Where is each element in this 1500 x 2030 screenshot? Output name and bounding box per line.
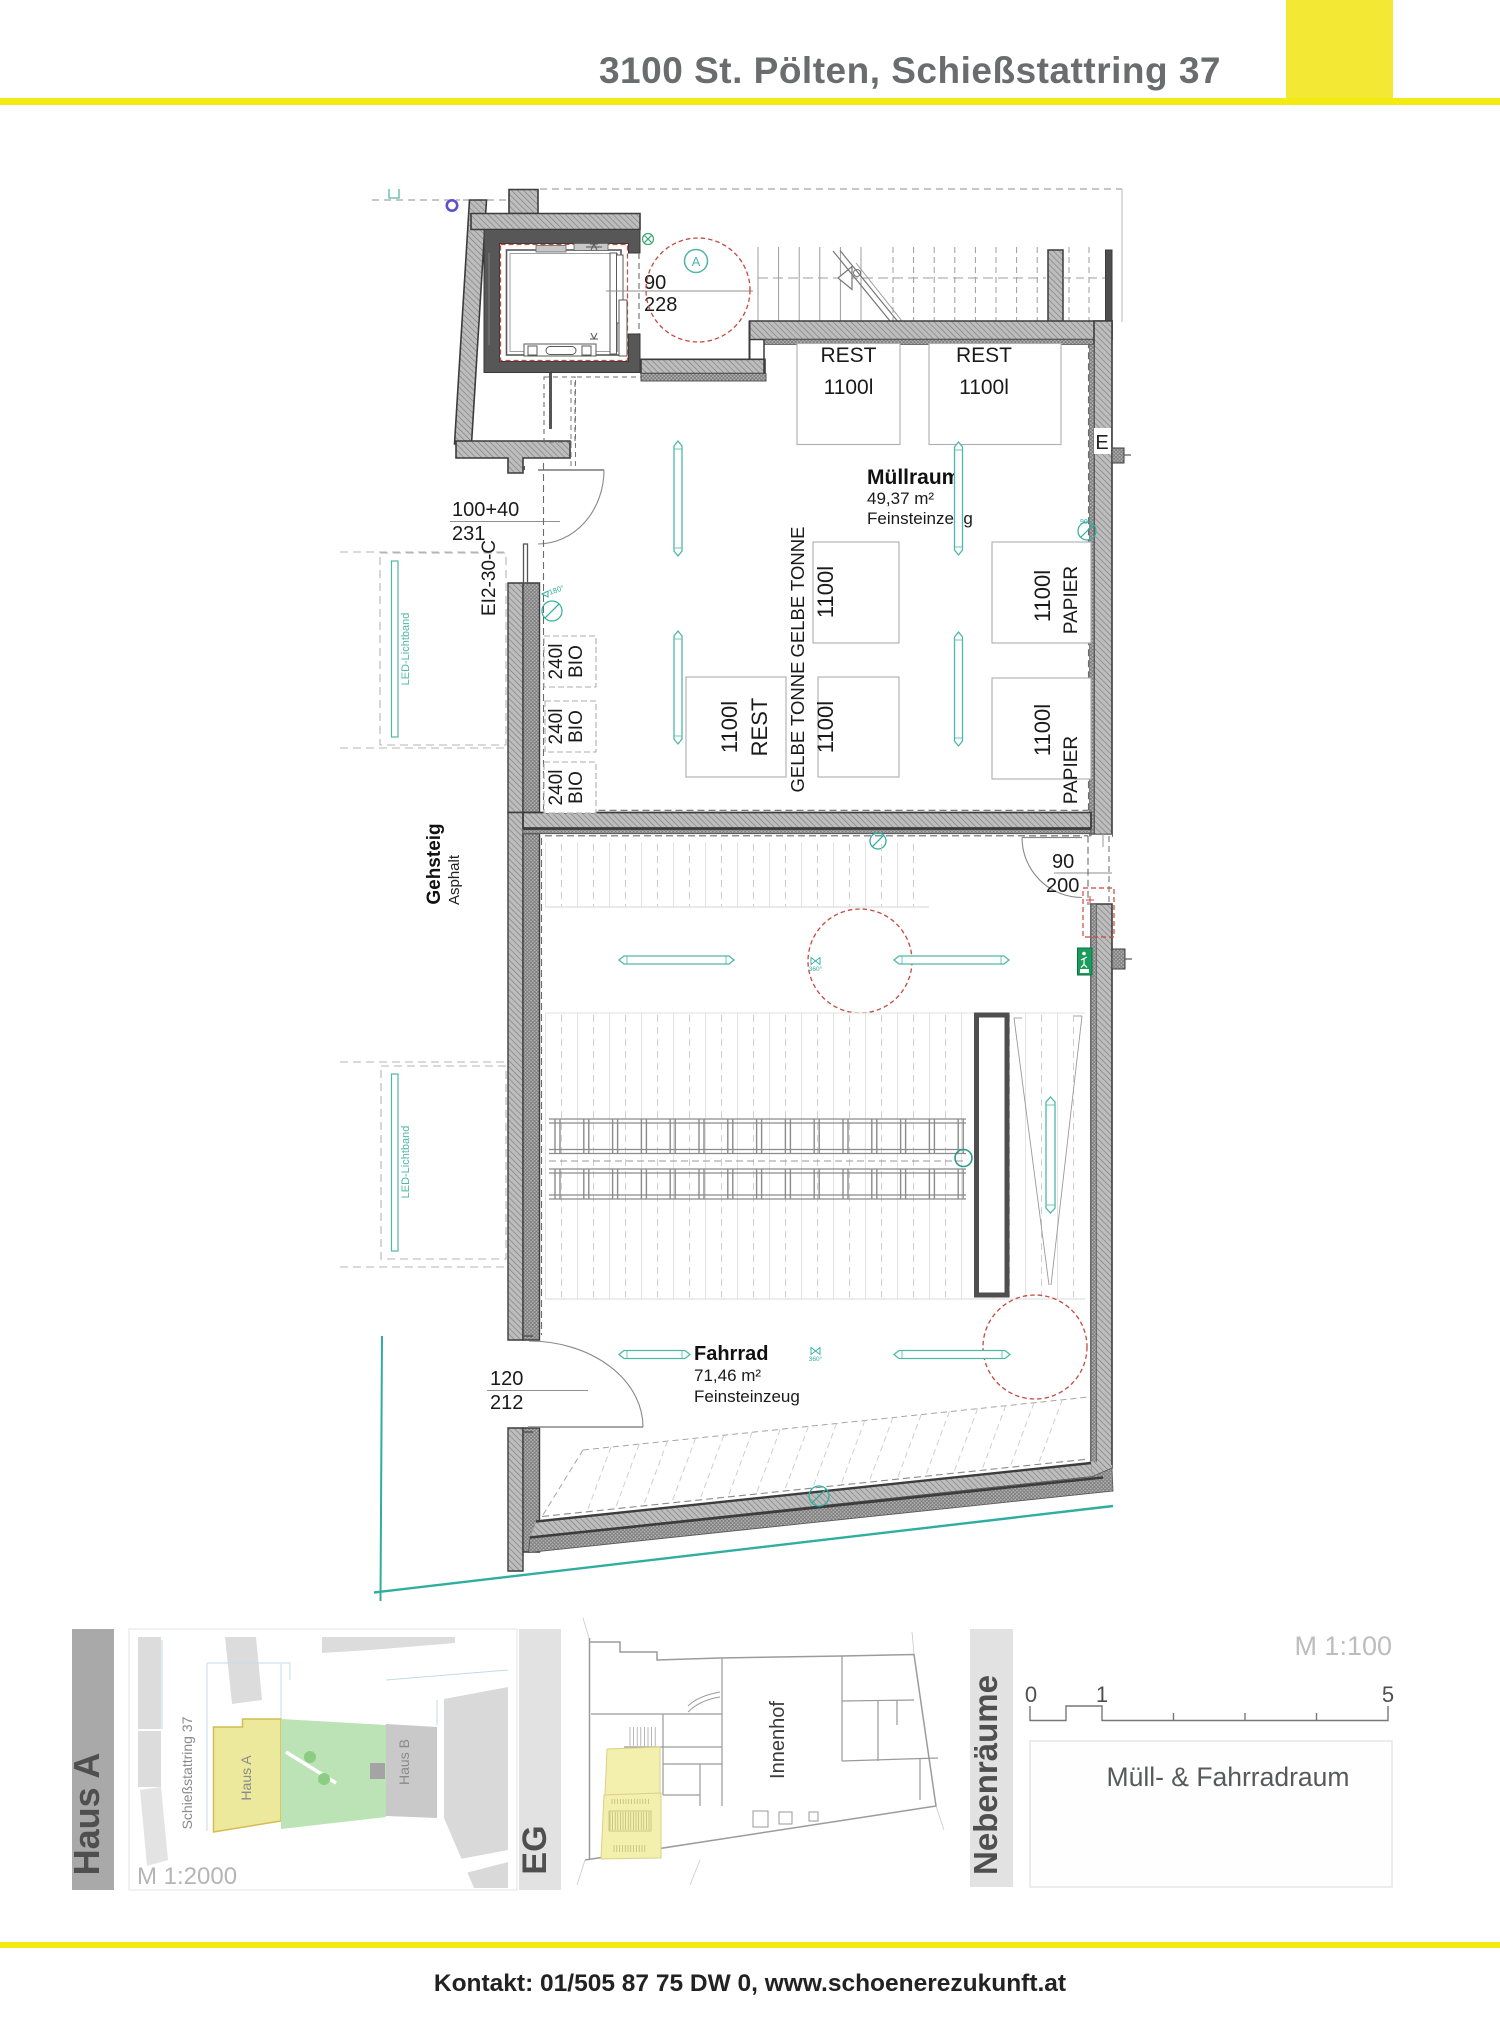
- svg-text:Müllraum: Müllraum: [867, 466, 960, 489]
- svg-text:120: 120: [490, 1368, 523, 1390]
- svg-text:Fahrrad: Fahrrad: [694, 1343, 768, 1365]
- svg-text:GELBE TONNE: GELBE TONNE: [787, 662, 808, 793]
- svg-text:M 1:100: M 1:100: [1294, 1631, 1392, 1661]
- svg-text:240l: 240l: [546, 709, 567, 745]
- svg-text:1100l: 1100l: [959, 376, 1009, 399]
- svg-text:BIO: BIO: [566, 771, 587, 804]
- svg-text:PAPIER: PAPIER: [1061, 736, 1082, 804]
- svg-text:228: 228: [644, 294, 677, 316]
- svg-text:Haus A: Haus A: [66, 1753, 107, 1876]
- svg-text:1100l: 1100l: [813, 566, 838, 618]
- svg-text:LED-Lichtband: LED-Lichtband: [400, 1126, 412, 1199]
- svg-text:240l: 240l: [546, 644, 567, 680]
- svg-text:360°: 360°: [809, 1355, 823, 1363]
- svg-text:Müll- & Fahrradraum: Müll- & Fahrradraum: [1107, 1762, 1350, 1792]
- svg-text:LED-Lichtband: LED-Lichtband: [400, 613, 412, 686]
- svg-text:360°: 360°: [809, 965, 823, 973]
- svg-text:90°: 90°: [1080, 518, 1091, 526]
- svg-text:100+40: 100+40: [452, 499, 519, 521]
- svg-text:1: 1: [1096, 1682, 1108, 1707]
- svg-text:180°: 180°: [548, 583, 566, 597]
- svg-text:M 1:2000: M 1:2000: [137, 1863, 237, 1890]
- svg-text:Nebenräume: Nebenräume: [967, 1675, 1004, 1875]
- svg-text:GELBE TONNE: GELBE TONNE: [787, 527, 808, 658]
- svg-text:BIO: BIO: [566, 710, 587, 743]
- svg-text:Haus B: Haus B: [396, 1739, 412, 1785]
- svg-text:212: 212: [490, 1392, 523, 1414]
- svg-text:EG: EG: [516, 1825, 554, 1874]
- svg-text:49,37 m²: 49,37 m²: [867, 489, 934, 508]
- svg-text:1100l: 1100l: [824, 376, 874, 399]
- svg-text:1100l: 1100l: [813, 701, 838, 753]
- svg-text:Asphalt: Asphalt: [446, 854, 463, 905]
- svg-text:BIO: BIO: [566, 645, 587, 678]
- svg-text:90: 90: [644, 272, 666, 294]
- svg-text:Feinsteinzeug: Feinsteinzeug: [694, 1387, 800, 1406]
- svg-text:PAPIER: PAPIER: [1061, 566, 1082, 634]
- svg-text:Gehsteig: Gehsteig: [424, 823, 445, 904]
- svg-text:0: 0: [1025, 1682, 1037, 1707]
- svg-text:5: 5: [1382, 1682, 1394, 1707]
- svg-text:Schießstattring 37: Schießstattring 37: [179, 1716, 195, 1829]
- svg-text:REST: REST: [956, 344, 1012, 367]
- svg-text:EI2-30-C: EI2-30-C: [479, 540, 500, 616]
- svg-text:240l: 240l: [546, 770, 567, 806]
- svg-text:Haus A: Haus A: [238, 1755, 254, 1801]
- svg-text:REST: REST: [820, 344, 876, 367]
- svg-text:1100l: 1100l: [1030, 704, 1055, 756]
- svg-text:Innenhof: Innenhof: [767, 1701, 789, 1779]
- svg-text:1100l: 1100l: [1030, 570, 1055, 622]
- svg-text:REST: REST: [747, 698, 772, 757]
- svg-text:E: E: [1095, 432, 1108, 454]
- svg-text:A: A: [692, 254, 701, 269]
- svg-text:1100l: 1100l: [717, 701, 742, 753]
- svg-text:71,46 m²: 71,46 m²: [694, 1366, 761, 1385]
- svg-text:200: 200: [1046, 875, 1079, 897]
- svg-text:90: 90: [1052, 851, 1074, 873]
